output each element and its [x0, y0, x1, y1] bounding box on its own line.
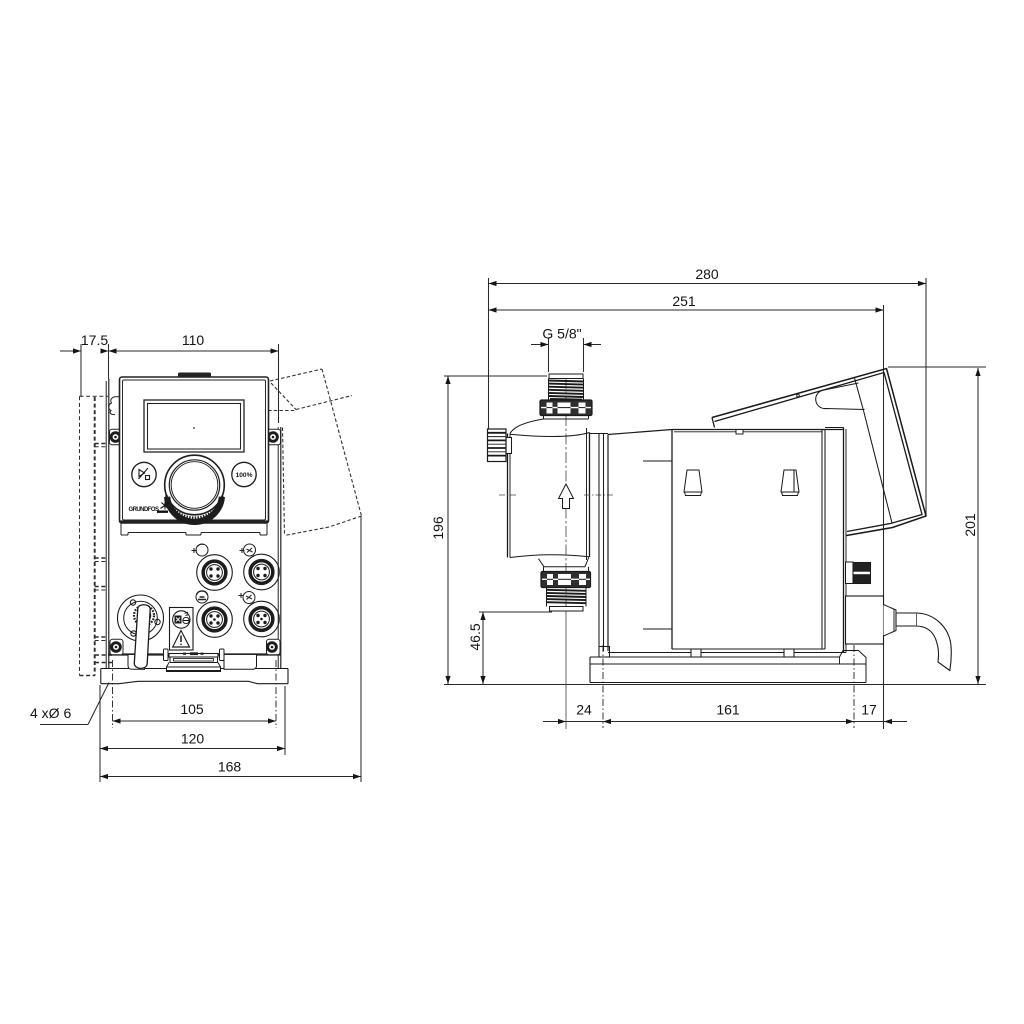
svg-text:196: 196 [430, 516, 446, 540]
svg-text:GRUNDFOS: GRUNDFOS [129, 507, 159, 513]
svg-text:46.5: 46.5 [467, 623, 483, 650]
svg-text:120: 120 [181, 731, 205, 747]
svg-text:168: 168 [218, 759, 242, 775]
svg-text:4 xØ 6: 4 xØ 6 [30, 705, 71, 721]
svg-text:105: 105 [180, 701, 204, 717]
svg-text:161: 161 [716, 702, 740, 718]
svg-text:251: 251 [672, 293, 696, 309]
svg-text:G 5/8": G 5/8" [542, 326, 581, 342]
svg-text:17: 17 [861, 702, 877, 718]
svg-text:24: 24 [576, 702, 592, 718]
svg-text:110: 110 [182, 332, 205, 348]
svg-text:100%: 100% [236, 472, 253, 479]
svg-text:201: 201 [962, 513, 978, 537]
svg-text:17.5: 17.5 [81, 332, 108, 348]
svg-text:280: 280 [695, 266, 719, 282]
